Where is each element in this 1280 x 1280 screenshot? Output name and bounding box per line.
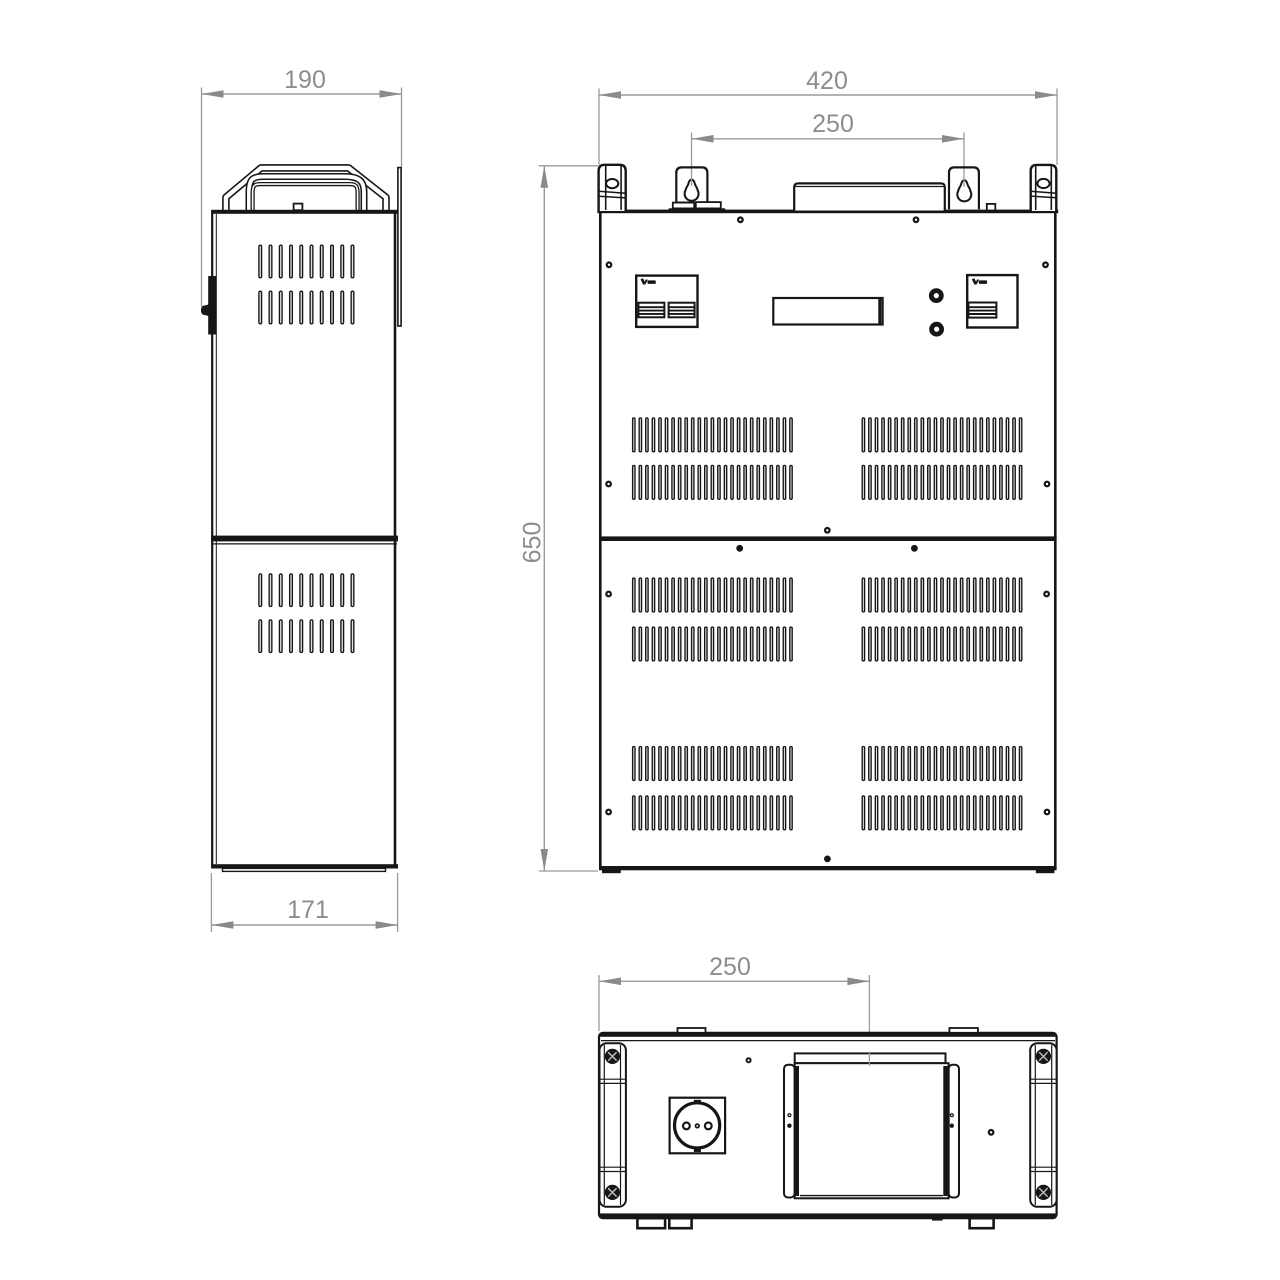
svg-text:250: 250 (812, 110, 854, 138)
svg-text:190: 190 (284, 66, 326, 94)
svg-text:250: 250 (709, 953, 751, 981)
svg-text:171: 171 (287, 896, 329, 924)
svg-text:420: 420 (806, 67, 848, 95)
svg-text:650: 650 (519, 522, 547, 564)
